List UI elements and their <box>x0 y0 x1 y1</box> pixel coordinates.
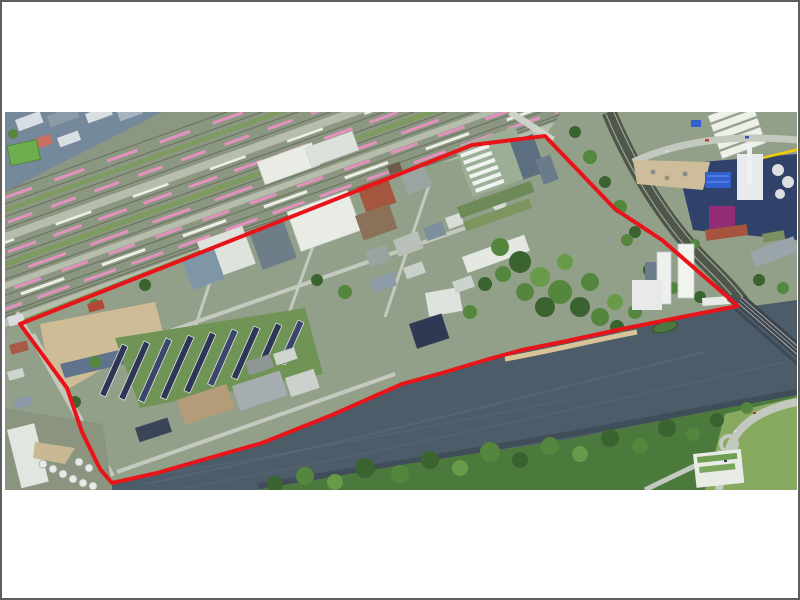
screenshot-frame <box>0 0 800 600</box>
aerial-photo <box>5 112 797 490</box>
aerial-photo-canvas <box>5 112 797 490</box>
